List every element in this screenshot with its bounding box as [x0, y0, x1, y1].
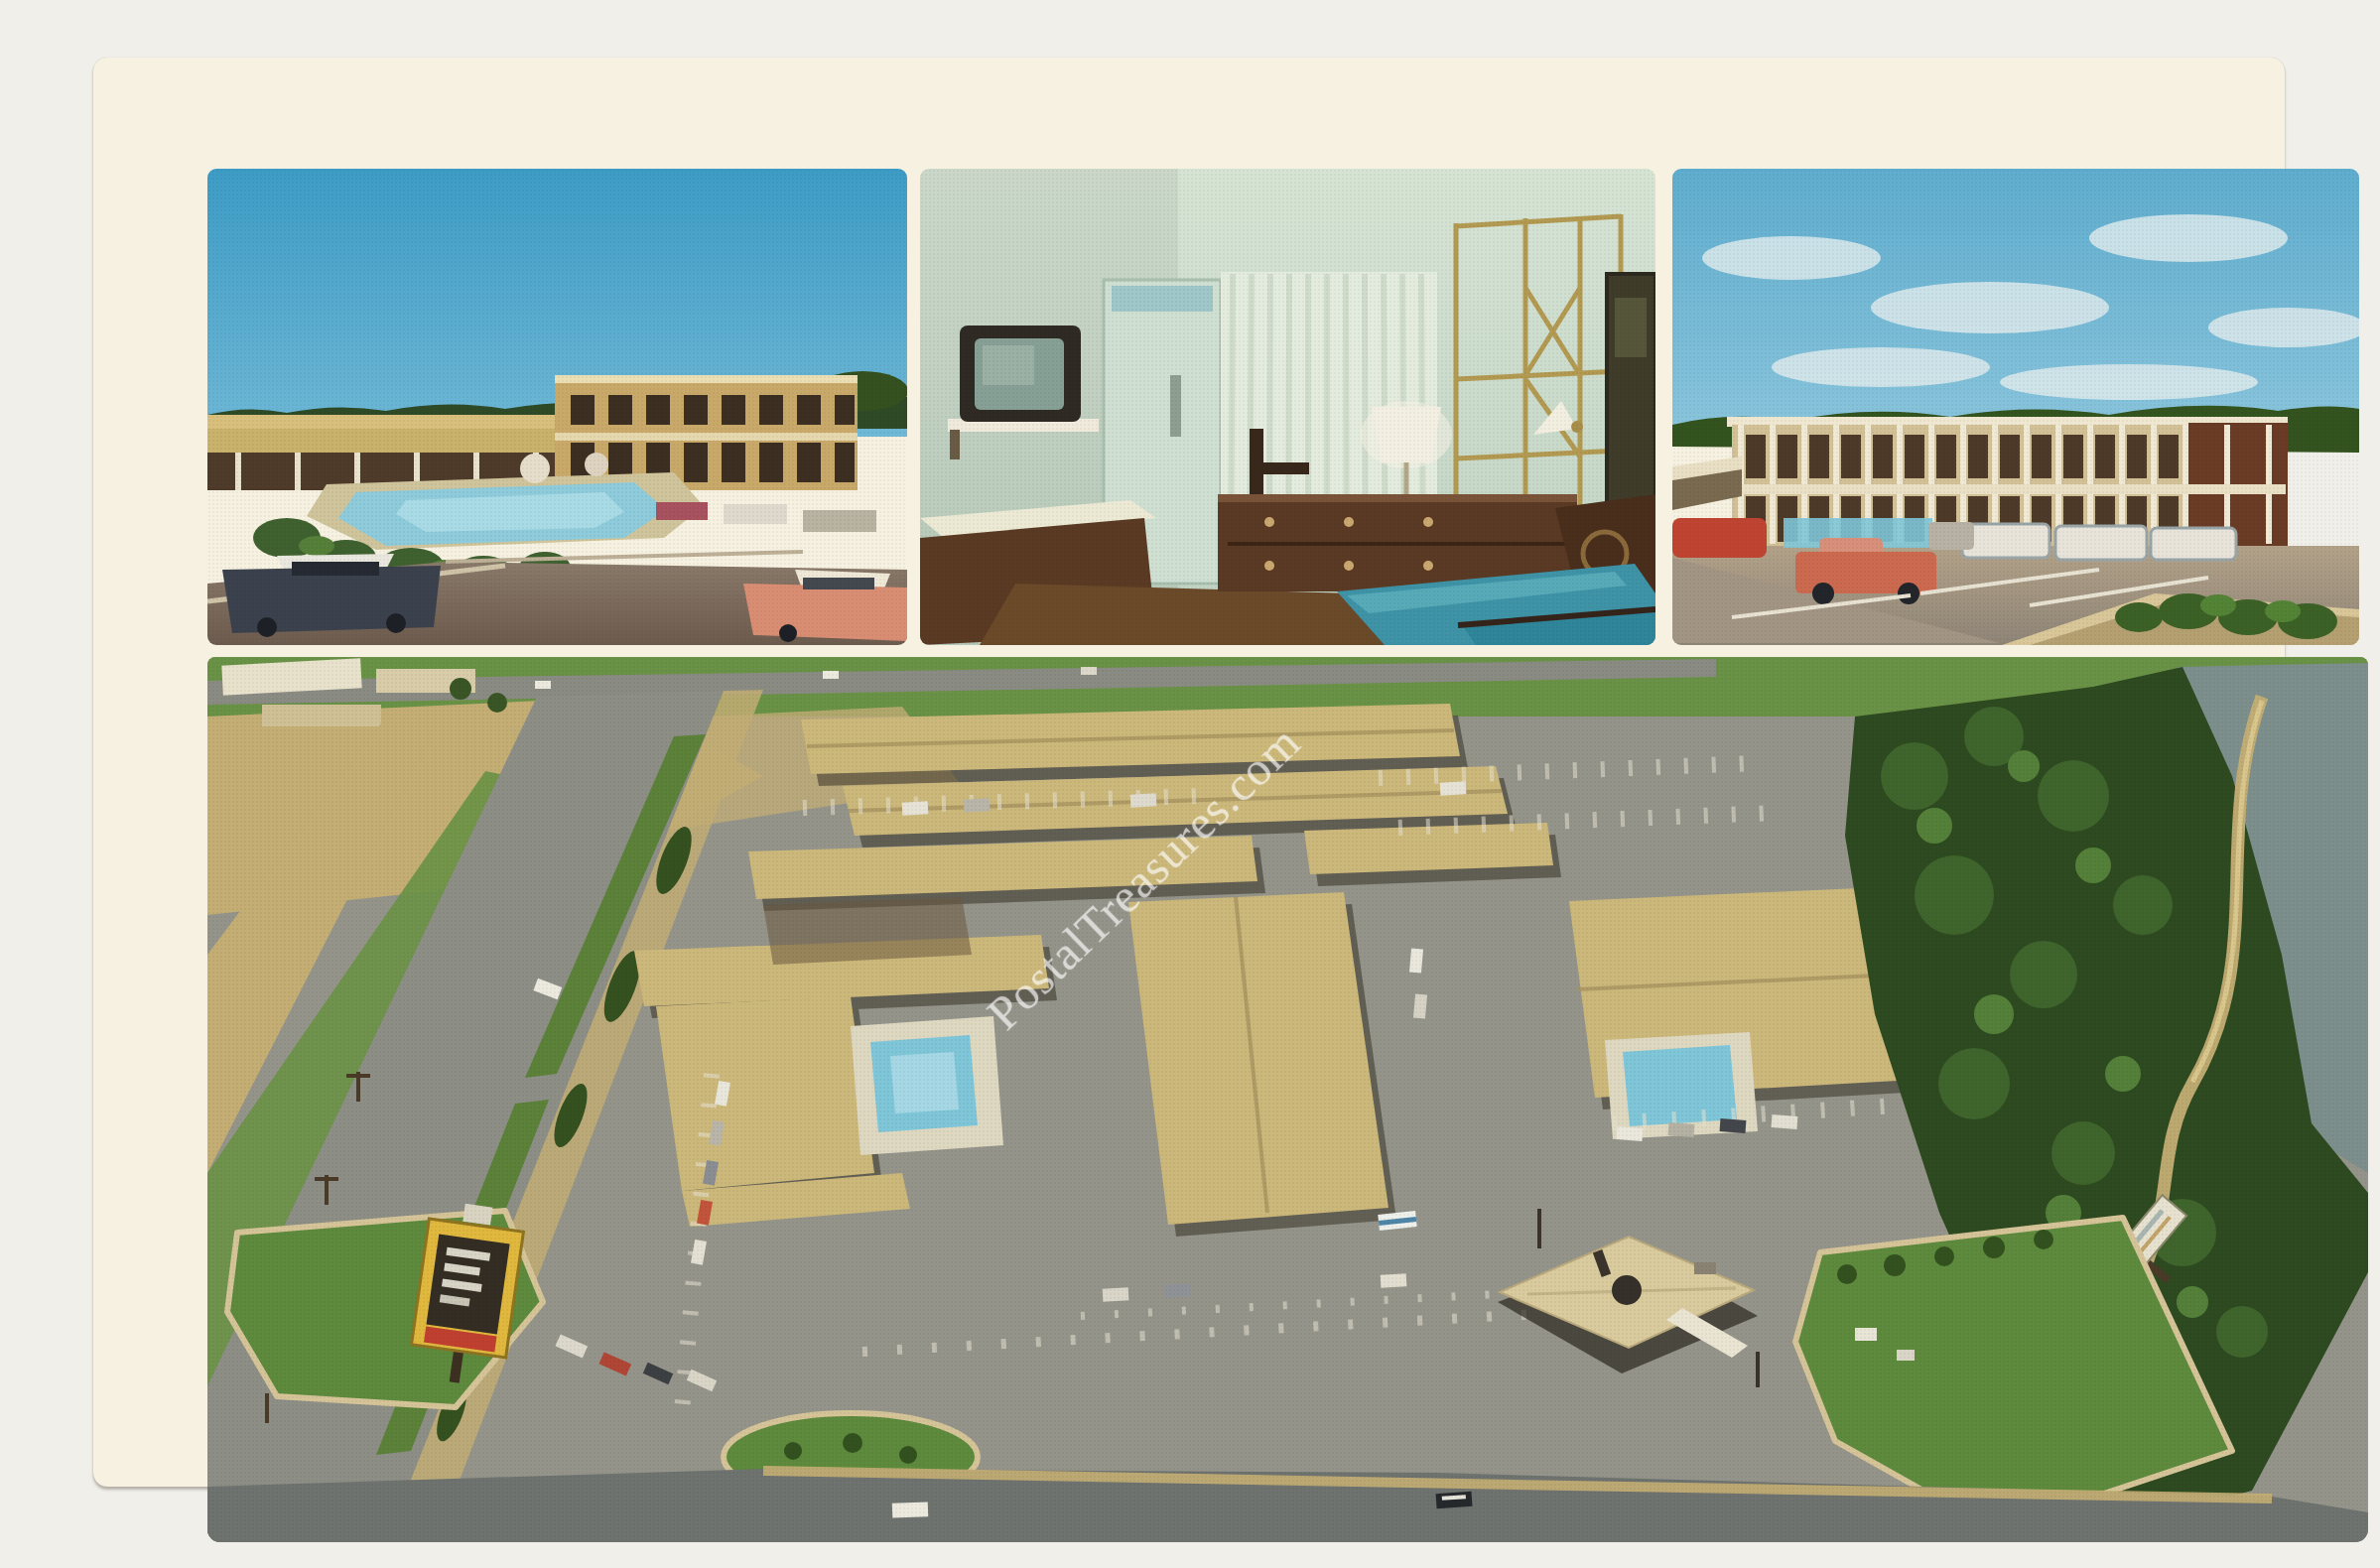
- scanned-postcard-page: PostalTreasures.com: [0, 0, 2380, 1568]
- roof-cupola: [1612, 1275, 1642, 1305]
- guest-room-interior-photo: [920, 169, 1655, 645]
- aerial-scene: [207, 657, 2368, 1542]
- two-story-motel-exterior-photo: [1672, 169, 2359, 645]
- postcard: PostalTreasures.com: [93, 58, 2285, 1487]
- left-building-roof: [656, 996, 874, 1191]
- transom-window: [1112, 286, 1213, 312]
- red-car: [1672, 518, 1767, 558]
- patio-umbrella: [520, 454, 550, 483]
- dark-car-on-road: [1436, 1492, 1473, 1508]
- dark-roof-patch: [763, 897, 972, 965]
- aerial-view-motel-complex-photo: [207, 657, 2368, 1542]
- car-on-road: [892, 1502, 929, 1517]
- small-car: [724, 504, 787, 524]
- small-car: [656, 502, 708, 520]
- motel-courtyard-scene: [207, 169, 907, 645]
- small-car: [803, 510, 876, 532]
- motel-exterior-scene: [1672, 169, 2359, 645]
- guest-room-scene: [920, 169, 1655, 645]
- right-pool: [1623, 1045, 1737, 1126]
- balcony-rail: [1732, 484, 2286, 494]
- center-building-roof: [1128, 892, 1388, 1225]
- motel-courtyard-pool-photo: [207, 169, 907, 645]
